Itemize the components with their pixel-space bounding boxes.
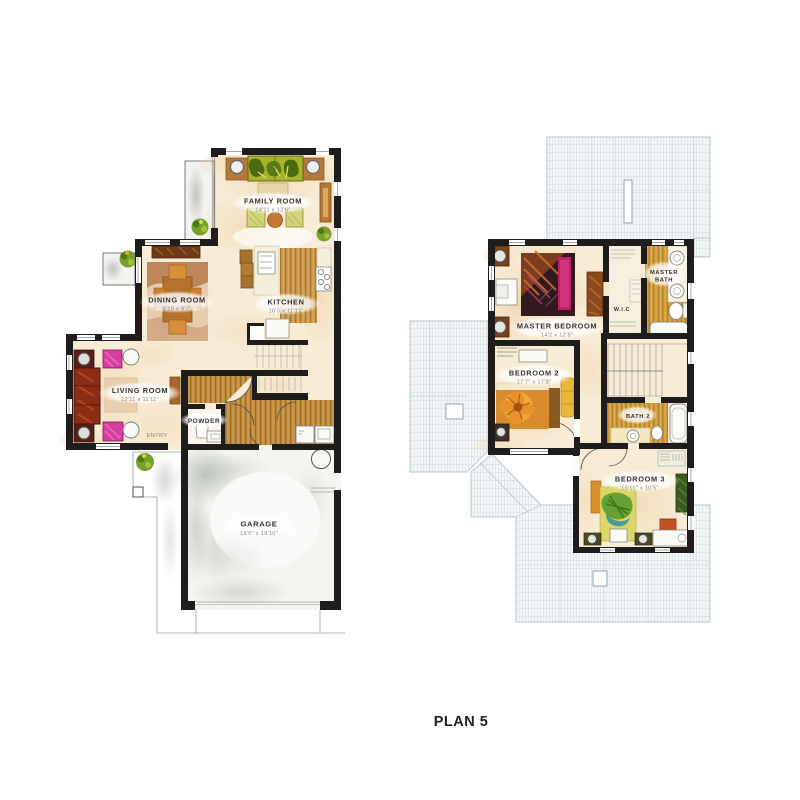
svg-text:GARAGE: GARAGE	[241, 520, 278, 529]
svg-text:MASTER BEDROOM: MASTER BEDROOM	[517, 322, 597, 331]
svg-text:FAMILY ROOM: FAMILY ROOM	[244, 197, 302, 206]
svg-text:BEDROOM 3: BEDROOM 3	[615, 475, 665, 484]
svg-text:W.I.C: W.I.C	[614, 307, 630, 313]
svg-text:14'2 x 12'8": 14'2 x 12'8"	[541, 333, 573, 339]
svg-text:BATH 2: BATH 2	[626, 414, 650, 420]
svg-text:LIVING ROOM: LIVING ROOM	[112, 386, 168, 395]
svg-text:KITCHEN: KITCHEN	[267, 298, 304, 307]
svg-text:POWDER: POWDER	[188, 418, 220, 425]
svg-text:10'3 x 11'11": 10'3 x 11'11"	[269, 309, 304, 315]
svg-text:DINING ROOM: DINING ROOM	[148, 296, 206, 305]
svg-text:12'11 x 11'11": 12'11 x 11'11"	[121, 397, 159, 403]
svg-text:BATH: BATH	[655, 278, 673, 284]
svg-text:PLAN 5: PLAN 5	[434, 714, 489, 730]
svg-text:MASTER: MASTER	[650, 270, 678, 276]
svg-text:BEDROOM 2: BEDROOM 2	[509, 369, 559, 378]
svg-text:14'11 x 12'6": 14'11 x 12'6"	[255, 208, 290, 214]
svg-text:ENTRY: ENTRY	[146, 433, 167, 439]
svg-text:19'0" x 19'10": 19'0" x 19'10"	[240, 531, 278, 537]
svg-text:15'11" x 10'5": 15'11" x 10'5"	[621, 486, 659, 492]
svg-text:9'10 x 9'7": 9'10 x 9'7"	[163, 307, 192, 313]
svg-text:17'7" x 17'8": 17'7" x 17'8"	[517, 380, 552, 386]
